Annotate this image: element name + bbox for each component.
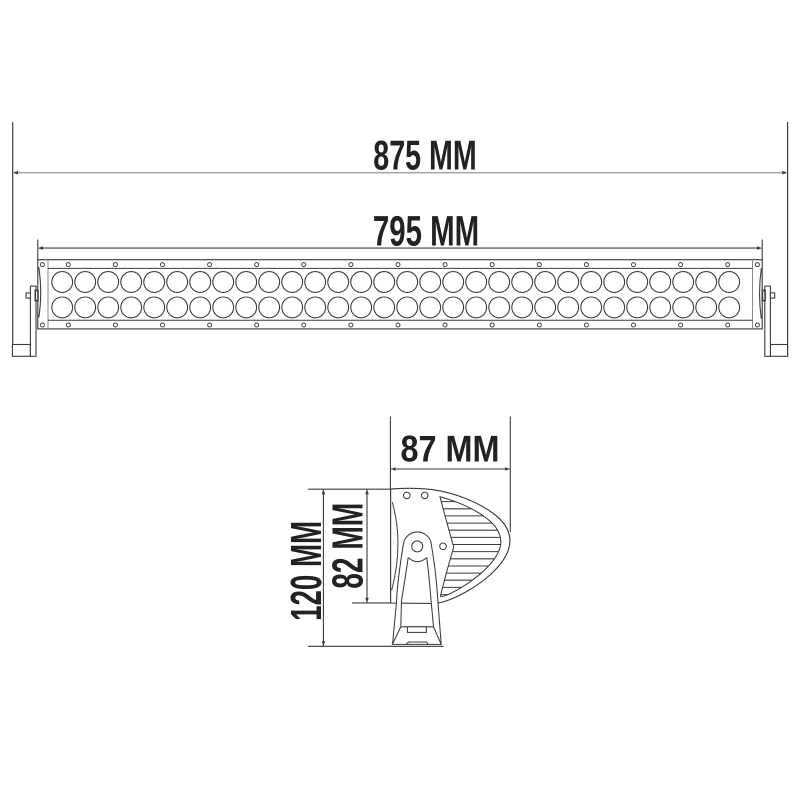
svg-text:87 MM: 87 MM (401, 428, 500, 470)
svg-text:82 MM: 82 MM (324, 503, 373, 589)
svg-text:795 MM: 795 MM (373, 209, 479, 256)
svg-text:875 MM: 875 MM (373, 131, 476, 178)
